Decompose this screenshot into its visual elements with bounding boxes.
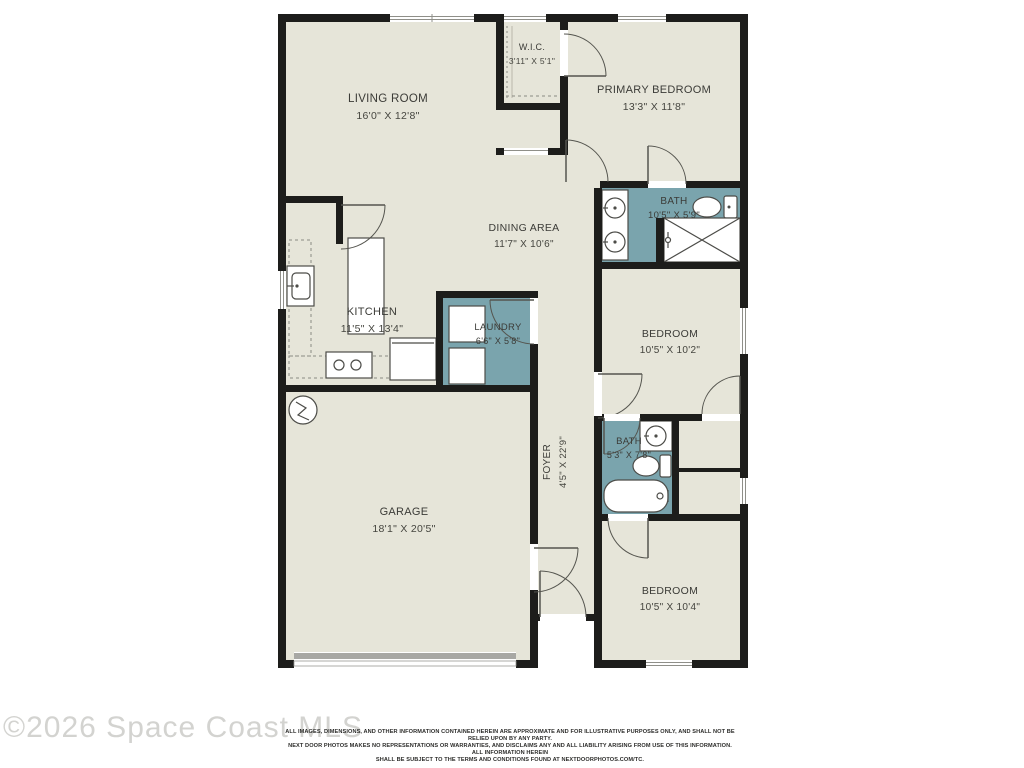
svg-text:LIVING ROOM: LIVING ROOM: [348, 93, 428, 105]
window: [740, 308, 748, 354]
disclaimer-line: NEXT DOOR PHOTOS MAKES NO REPRESENTATION…: [282, 743, 738, 757]
svg-text:LAUNDRY: LAUNDRY: [474, 322, 522, 333]
svg-text:PRIMARY BEDROOM: PRIMARY BEDROOM: [597, 84, 711, 96]
kitchen-sink-icon: [287, 266, 314, 306]
svg-text:16'0" X 12'8": 16'0" X 12'8": [356, 110, 419, 122]
wall: [496, 22, 504, 110]
svg-text:BEDROOM: BEDROOM: [642, 328, 698, 340]
window: [646, 660, 692, 668]
wall: [530, 385, 538, 668]
svg-text:FOYER: FOYER: [542, 444, 553, 480]
svg-text:KITCHEN: KITCHEN: [347, 306, 397, 318]
wall: [278, 385, 538, 392]
wall: [436, 291, 538, 298]
svg-text:11'7" X 10'6": 11'7" X 10'6": [494, 239, 554, 250]
svg-text:4'5" X 22'9": 4'5" X 22'9": [558, 436, 569, 488]
svg-text:5'3" X 7'8": 5'3" X 7'8": [607, 450, 651, 460]
window: [278, 271, 286, 309]
wall: [336, 196, 343, 244]
kitchen-island: [348, 238, 384, 334]
wall: [278, 14, 286, 668]
window: [504, 14, 546, 22]
wall: [656, 218, 664, 262]
window: [618, 14, 666, 22]
wall: [672, 421, 679, 521]
shower-icon: [664, 218, 740, 262]
front-porch: [538, 621, 594, 668]
floor-plan: LIVING ROOM 16'0" X 12'8" W.I.C. 3'11" X…: [0, 0, 1024, 768]
wall: [496, 103, 568, 110]
window: [390, 14, 474, 22]
svg-text:DINING AREA: DINING AREA: [489, 222, 560, 234]
floor-plan-page: LIVING ROOM 16'0" X 12'8" W.I.C. 3'11" X…: [0, 0, 1024, 768]
svg-text:6'6" X 5'8": 6'6" X 5'8": [476, 336, 520, 346]
window: [740, 478, 748, 504]
disclaimer-line: SHALL BE SUBJECT TO THE TERMS AND CONDIT…: [282, 757, 738, 764]
door-arc: [504, 148, 548, 155]
svg-text:BATH: BATH: [660, 196, 687, 207]
svg-text:10'5" X 5'9": 10'5" X 5'9": [648, 210, 700, 221]
wall: [278, 196, 342, 203]
svg-text:3'11" X 5'1": 3'11" X 5'1": [509, 56, 555, 66]
disclaimer-line: ALL IMAGES, DIMENSIONS, AND OTHER INFORM…: [282, 729, 738, 743]
stove-icon: [326, 352, 372, 378]
svg-text:11'5" X 13'4": 11'5" X 13'4": [341, 323, 403, 335]
svg-text:10'5" X 10'4": 10'5" X 10'4": [640, 602, 701, 613]
disclaimer: ALL IMAGES, DIMENSIONS, AND OTHER INFORM…: [282, 729, 738, 764]
garage-door: [294, 652, 516, 668]
svg-text:BEDROOM: BEDROOM: [642, 585, 698, 597]
dryer-icon: [449, 348, 485, 384]
bathtub-icon: [604, 480, 668, 512]
svg-text:W.I.C.: W.I.C.: [519, 42, 545, 52]
wall: [594, 188, 602, 668]
svg-text:GARAGE: GARAGE: [380, 506, 429, 518]
water-heater-icon: [289, 396, 317, 424]
svg-text:13'3" X 11'8": 13'3" X 11'8": [623, 101, 685, 113]
svg-text:BATH: BATH: [616, 436, 642, 447]
wall: [594, 262, 748, 269]
wall: [436, 291, 443, 392]
refrigerator-icon: [390, 338, 436, 380]
wall: [679, 468, 740, 472]
svg-text:18'1" X 20'5": 18'1" X 20'5": [372, 523, 435, 535]
svg-text:10'5" X 10'2": 10'5" X 10'2": [640, 345, 701, 356]
